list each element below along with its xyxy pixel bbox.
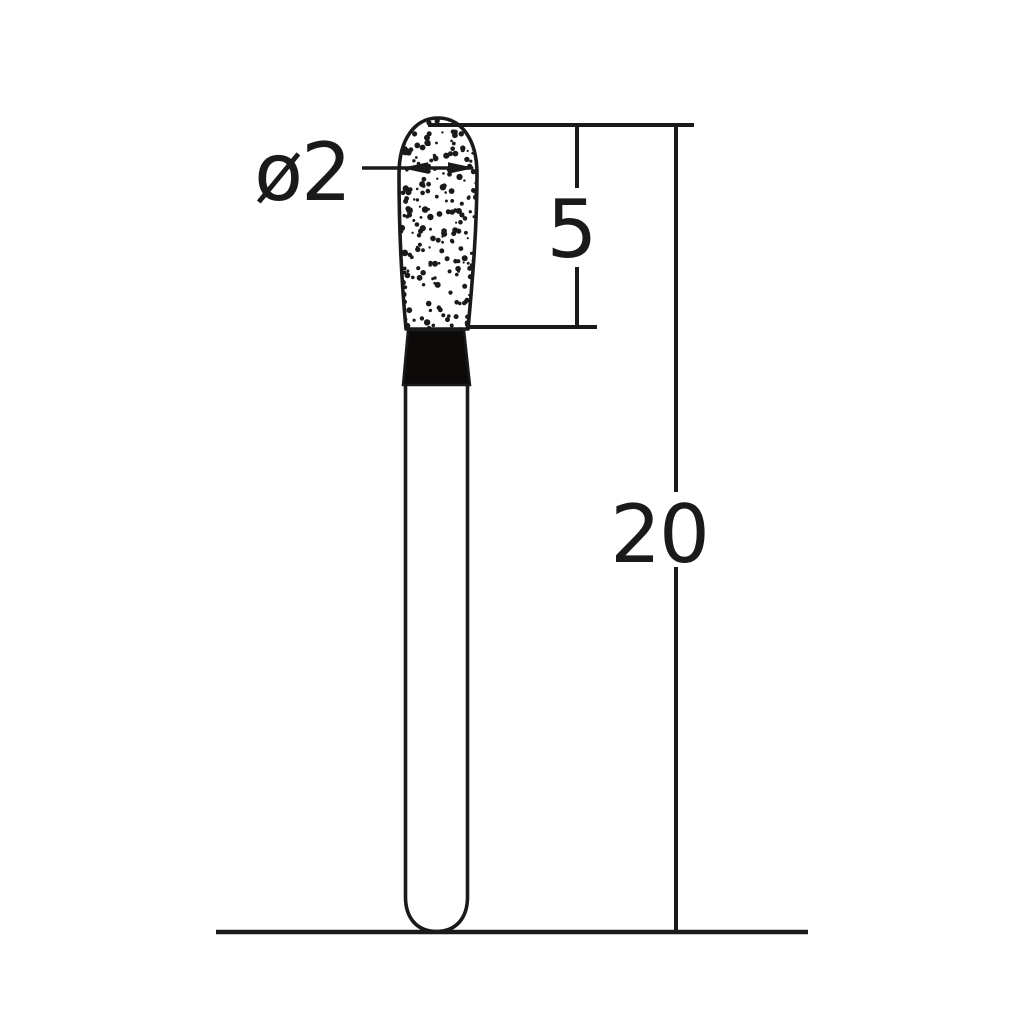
grit-dot	[408, 253, 412, 257]
grit-dot	[469, 160, 472, 163]
grit-dot	[459, 131, 464, 136]
bur-shank	[406, 384, 468, 932]
grit-dot	[404, 196, 409, 201]
grit-dot	[398, 305, 402, 309]
grit-dot	[412, 159, 415, 162]
grit-dot	[439, 248, 444, 253]
grit-dot	[437, 211, 443, 217]
grit-dot	[428, 263, 432, 267]
grit-dot	[462, 284, 467, 289]
grit-dot	[416, 188, 419, 191]
grit-dot	[426, 182, 431, 187]
grit-dot	[413, 319, 416, 322]
grit-dot	[403, 267, 407, 271]
grit-dot	[429, 159, 433, 163]
grit-dot	[421, 248, 425, 252]
technical-drawing-page: ø2 5 20	[0, 0, 1024, 1024]
label-overall-length: 20	[610, 488, 708, 581]
grit-dot	[442, 172, 445, 175]
grit-dot	[471, 313, 474, 316]
dimension-annotations	[216, 125, 808, 932]
grit-dot	[477, 235, 481, 239]
grit-dot	[452, 142, 456, 146]
grit-dot	[472, 300, 474, 302]
grit-dot	[422, 184, 426, 188]
grit-dot	[411, 232, 413, 234]
grit-dot	[470, 252, 473, 255]
grit-dot	[476, 292, 481, 297]
grit-dot	[441, 313, 445, 317]
grit-dot	[424, 319, 430, 325]
grit-dot	[426, 301, 432, 307]
grit-dot	[470, 263, 474, 267]
grit-dot	[450, 140, 453, 143]
grit-dot	[402, 250, 409, 257]
grit-dot	[453, 208, 457, 212]
grit-dot	[436, 238, 441, 243]
grit-dot	[403, 271, 407, 275]
grit-dot	[412, 131, 417, 136]
grit-dot	[476, 141, 482, 147]
grit-dot	[450, 239, 454, 243]
grit-dot	[448, 269, 452, 273]
grit-dot	[445, 256, 450, 261]
grit-dot	[458, 302, 462, 306]
grit-dot	[471, 320, 476, 325]
grit-dot	[404, 285, 408, 289]
grit-dot	[413, 198, 415, 200]
grit-dot	[420, 191, 425, 196]
grit-dot	[468, 294, 470, 296]
grit-dot	[432, 261, 438, 267]
grit-dot	[429, 309, 432, 312]
label-head-diameter: ø2	[254, 126, 350, 219]
grit-dot	[450, 147, 455, 152]
grit-dot	[465, 298, 470, 303]
grit-dot	[468, 274, 473, 279]
grit-dot	[438, 308, 443, 313]
grit-dot	[449, 188, 455, 194]
grit-dot	[468, 195, 471, 198]
grit-dot	[405, 118, 407, 120]
grit-dot	[460, 202, 464, 206]
grit-dot	[471, 152, 474, 155]
grit-dot	[467, 262, 470, 265]
grit-dot	[426, 189, 431, 194]
grit-dot	[461, 148, 465, 152]
grit-dot	[463, 261, 465, 263]
grit-dot	[435, 282, 441, 288]
grit-dot	[458, 220, 463, 225]
grit-dot	[416, 198, 419, 201]
grit-dot	[409, 147, 414, 152]
grit-dot	[473, 301, 480, 308]
dimension-labels: ø2 5 20	[254, 126, 708, 581]
grit-dot	[476, 277, 481, 282]
grit-dot	[424, 135, 430, 141]
bur-dimension-diagram: ø2 5 20	[0, 0, 1024, 1024]
bur-neck-band	[403, 330, 470, 385]
grit-dot	[403, 185, 409, 191]
grit-dot	[442, 183, 447, 188]
grit-dot	[430, 236, 436, 242]
grit-dot	[441, 228, 447, 234]
grit-dot	[417, 275, 423, 281]
grit-dot	[435, 142, 438, 145]
grit-dot	[422, 206, 429, 213]
grit-dot	[422, 283, 425, 286]
grit-dot	[411, 276, 415, 280]
grit-dot	[428, 246, 430, 248]
grit-dot	[475, 254, 479, 258]
label-head-length: 5	[547, 183, 596, 276]
grit-dot	[420, 216, 423, 219]
grit-dot	[416, 266, 420, 270]
grit-dot	[448, 291, 452, 295]
grit-dot	[471, 319, 477, 325]
grit-dot	[435, 195, 439, 199]
grit-dot	[401, 125, 404, 128]
grit-dot	[421, 270, 426, 275]
grit-dot	[450, 199, 454, 203]
grit-dot	[422, 177, 427, 182]
grit-dot	[406, 307, 412, 313]
grit-dot	[415, 222, 420, 227]
grit-dot	[402, 124, 406, 128]
grit-dot	[418, 243, 421, 246]
grit-dot	[419, 206, 421, 208]
grit-dot	[410, 115, 415, 120]
grit-dot	[415, 156, 418, 159]
grit-dot	[467, 237, 469, 239]
grit-dot	[462, 255, 468, 261]
grit-dot	[424, 140, 430, 146]
grit-dot	[434, 157, 437, 160]
grit-dot	[453, 130, 458, 135]
grit-dot	[415, 247, 420, 252]
grit-dot	[444, 191, 447, 194]
grit-dot	[420, 225, 426, 231]
grit-dot	[463, 302, 465, 304]
grit-dot	[427, 214, 433, 220]
grit-dot	[477, 143, 480, 146]
grit-dot	[455, 273, 459, 277]
grit-dot	[453, 151, 459, 157]
grit-dot	[467, 150, 469, 152]
grit-dot	[463, 179, 465, 181]
grit-dot	[441, 241, 444, 244]
grit-dot	[456, 174, 462, 180]
grit-dot	[435, 119, 440, 124]
grit-dot	[436, 178, 438, 180]
grit-dot	[455, 222, 457, 224]
grit-dot	[433, 276, 436, 279]
grit-dot	[429, 228, 432, 231]
grit-dot	[432, 324, 436, 328]
grit-dot	[465, 315, 469, 319]
grit-dot	[450, 324, 454, 328]
grit-dot	[469, 210, 472, 213]
grit-dot	[420, 316, 424, 320]
grit-dot	[406, 270, 409, 273]
grit-dot	[448, 151, 453, 156]
grit-dot	[454, 314, 459, 319]
grit-dot	[433, 154, 436, 157]
grit-dot	[412, 219, 415, 222]
grit-dot	[445, 317, 450, 322]
grit-dot	[459, 246, 464, 251]
grit-dot	[459, 212, 464, 217]
grit-dot	[441, 131, 443, 133]
bur-drawing	[395, 113, 482, 931]
grit-dot	[446, 209, 451, 214]
grit-dot	[414, 143, 420, 149]
grit-dot	[438, 262, 441, 265]
grit-dot	[464, 157, 469, 162]
grit-dot	[473, 215, 476, 218]
grit-dot	[445, 200, 448, 203]
grit-dot	[464, 231, 468, 235]
grit-dot	[420, 145, 426, 151]
grit-dot	[418, 113, 424, 119]
grit-dot	[453, 259, 458, 264]
grit-dot	[427, 208, 430, 211]
grit-dot	[406, 207, 413, 214]
grit-dot	[451, 231, 456, 236]
grit-dot	[455, 266, 461, 272]
grit-dot	[474, 289, 478, 293]
grit-dot	[417, 233, 421, 237]
